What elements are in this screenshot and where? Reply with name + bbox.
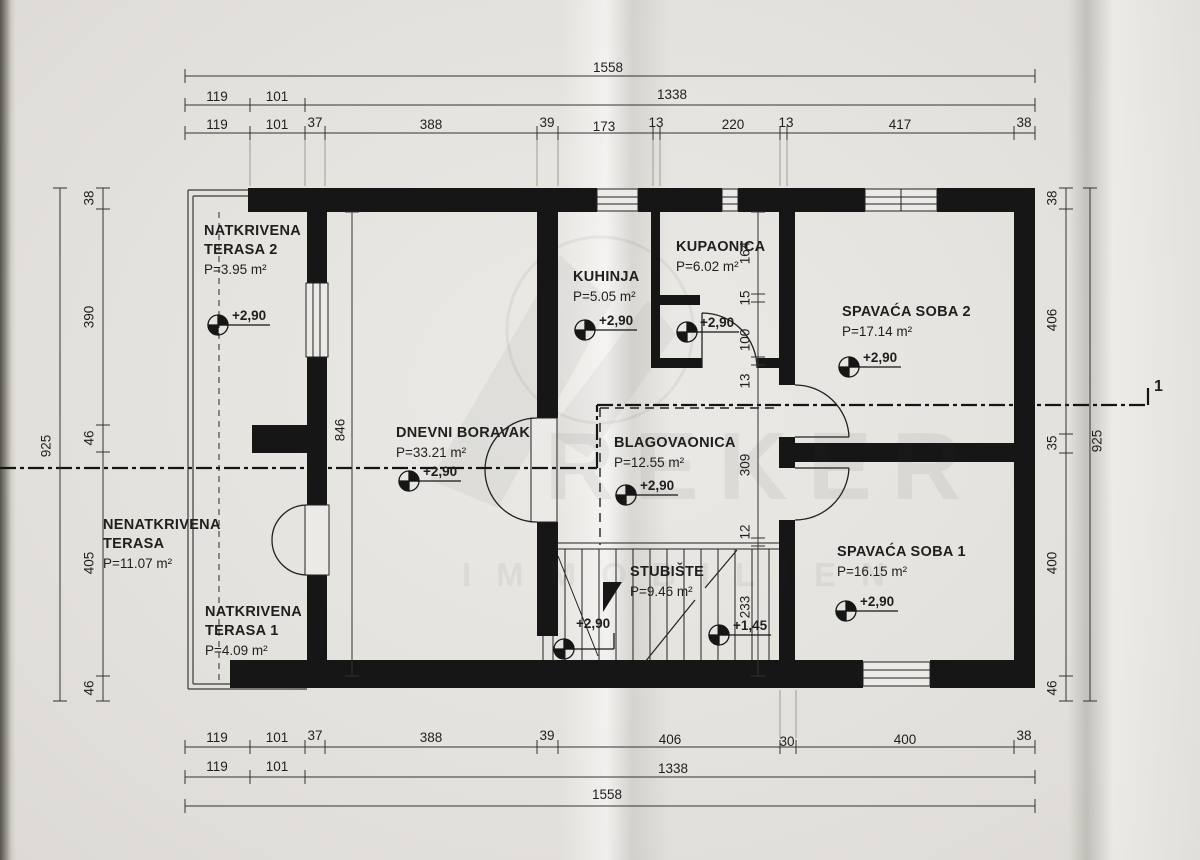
room-label-spavaca-soba-1: SPAVAĆA SOBA 1 P=16.15 m² <box>837 543 966 581</box>
dim-label: 388 <box>420 730 443 745</box>
dim-label: 233 <box>738 596 753 619</box>
dim-label: 119 <box>206 117 228 132</box>
level-label: +2,90 <box>423 464 457 479</box>
dim-label: 1558 <box>593 60 623 75</box>
room-label-spavaca-soba-2: SPAVAĆA SOBA 2 P=17.14 m² <box>842 303 971 341</box>
dim-label: 417 <box>889 117 912 132</box>
dim-label: 406 <box>659 732 682 747</box>
room-name: TERASA 1 <box>205 622 302 641</box>
dim-label: 13 <box>648 115 663 130</box>
dim-label: 220 <box>722 117 745 132</box>
bedroom2-window <box>865 189 937 211</box>
room-label-dnevni-boravak: DNEVNI BORAVAK P=33.21 m² <box>396 424 530 462</box>
dim-label: 925 <box>1090 430 1105 453</box>
dim-label: 101 <box>266 117 289 132</box>
level-label: +2,90 <box>576 616 610 631</box>
level-marker-landing <box>554 633 614 659</box>
room-area: P=9.46 m² <box>630 582 704 601</box>
dim-label: 846 <box>333 419 348 442</box>
dim-label: 400 <box>894 732 917 747</box>
room-label-stubiste: STUBIŠTE P=9.46 m² <box>630 563 704 601</box>
room-area: P=5.05 m² <box>573 287 640 306</box>
dim-label: 406 <box>1045 309 1060 332</box>
room-name: TERASA 2 <box>204 241 301 260</box>
dim-label: 13 <box>778 115 793 130</box>
dim-label: 38 <box>82 190 97 205</box>
room-label-kuhinja: KUHINJA P=5.05 m² <box>573 268 640 306</box>
room-name: NATKRIVENA <box>205 603 302 622</box>
dim-label: 30 <box>779 734 794 749</box>
bathroom-window <box>722 189 738 211</box>
dim-label: 1338 <box>658 761 688 776</box>
floor-plan-scan: REKER IMMOBILIEN NATKRIVENA TERASA 2 P=3… <box>0 0 1200 860</box>
dim-label: 119 <box>206 730 228 745</box>
dim-label: 400 <box>1045 552 1060 575</box>
room-name: BLAGOVAONICA <box>614 434 736 453</box>
room-name: TERASA <box>103 535 221 554</box>
room-name: NENATKRIVENA <box>103 516 221 535</box>
level-label: +2,90 <box>232 308 266 323</box>
dim-label: 100 <box>738 329 753 352</box>
dim-label: 46 <box>1045 680 1060 695</box>
dim-label: 173 <box>593 119 616 134</box>
dim-label: 46 <box>82 430 97 445</box>
dim-label: 39 <box>539 115 554 130</box>
dim-label: 101 <box>266 730 289 745</box>
room-name: KUHINJA <box>573 268 640 287</box>
bedroom1-window <box>863 662 930 686</box>
dim-label: 309 <box>738 454 753 477</box>
room-label-natkrivena-terasa-2: NATKRIVENA TERASA 2 P=3.95 m² <box>204 222 301 279</box>
dim-label: 39 <box>539 728 554 743</box>
dim-label: 405 <box>82 552 97 575</box>
room-name: SPAVAĆA SOBA 1 <box>837 543 966 562</box>
terrace2-window <box>306 283 328 357</box>
level-label: +2,90 <box>700 315 734 330</box>
room-label-natkrivena-terasa-1: NATKRIVENA TERASA 1 P=4.09 m² <box>205 603 302 660</box>
terrace-french-door <box>272 505 329 575</box>
room-area: P=3.95 m² <box>204 260 301 279</box>
level-label: +2,90 <box>599 313 633 328</box>
dim-label: 101 <box>266 89 289 104</box>
dim-label: 37 <box>307 728 322 743</box>
dim-label: 38 <box>1016 115 1031 130</box>
room-area: P=4.09 m² <box>205 641 302 660</box>
level-label: +2,90 <box>863 350 897 365</box>
dim-label: 164 <box>738 242 753 265</box>
dim-label: 119 <box>206 89 228 104</box>
room-name: NATKRIVENA <box>204 222 301 241</box>
level-label: +2,90 <box>640 478 674 493</box>
room-label-nenatkrivena-terasa: NENATKRIVENA TERASA P=11.07 m² <box>103 516 221 573</box>
room-name: STUBIŠTE <box>630 563 704 582</box>
level-label: +2,90 <box>860 594 894 609</box>
room-area: P=16.15 m² <box>837 562 966 581</box>
dim-label: 37 <box>307 115 322 130</box>
kitchen-window <box>597 189 638 211</box>
room-area: P=11.07 m² <box>103 554 221 573</box>
dim-label: 390 <box>82 306 97 329</box>
dim-label: 38 <box>1016 728 1031 743</box>
room-area: P=17.14 m² <box>842 322 971 341</box>
dim-label: 38 <box>1045 190 1060 205</box>
section-marker-label: 1 <box>1154 378 1163 396</box>
room-name: SPAVAĆA SOBA 2 <box>842 303 971 322</box>
dim-label: 15 <box>738 290 753 305</box>
room-name: DNEVNI BORAVAK <box>396 424 530 443</box>
dim-label: 46 <box>82 680 97 695</box>
room-area: P=12.55 m² <box>614 453 736 472</box>
room-area: P=33.21 m² <box>396 443 530 462</box>
dim-label: 1338 <box>657 87 687 102</box>
level-label-stairs: +1,45 <box>733 618 767 633</box>
dim-label: 101 <box>266 759 289 774</box>
dim-label: 13 <box>738 373 753 388</box>
dim-label: 119 <box>206 759 228 774</box>
dim-label: 35 <box>1045 435 1060 450</box>
dim-label: 12 <box>738 524 753 539</box>
dim-label: 925 <box>39 435 54 458</box>
room-label-blagovaonica: BLAGOVAONICA P=12.55 m² <box>614 434 736 472</box>
watermark-brand: REKER <box>545 412 981 522</box>
dim-label: 1558 <box>592 787 622 802</box>
dim-label: 388 <box>420 117 443 132</box>
